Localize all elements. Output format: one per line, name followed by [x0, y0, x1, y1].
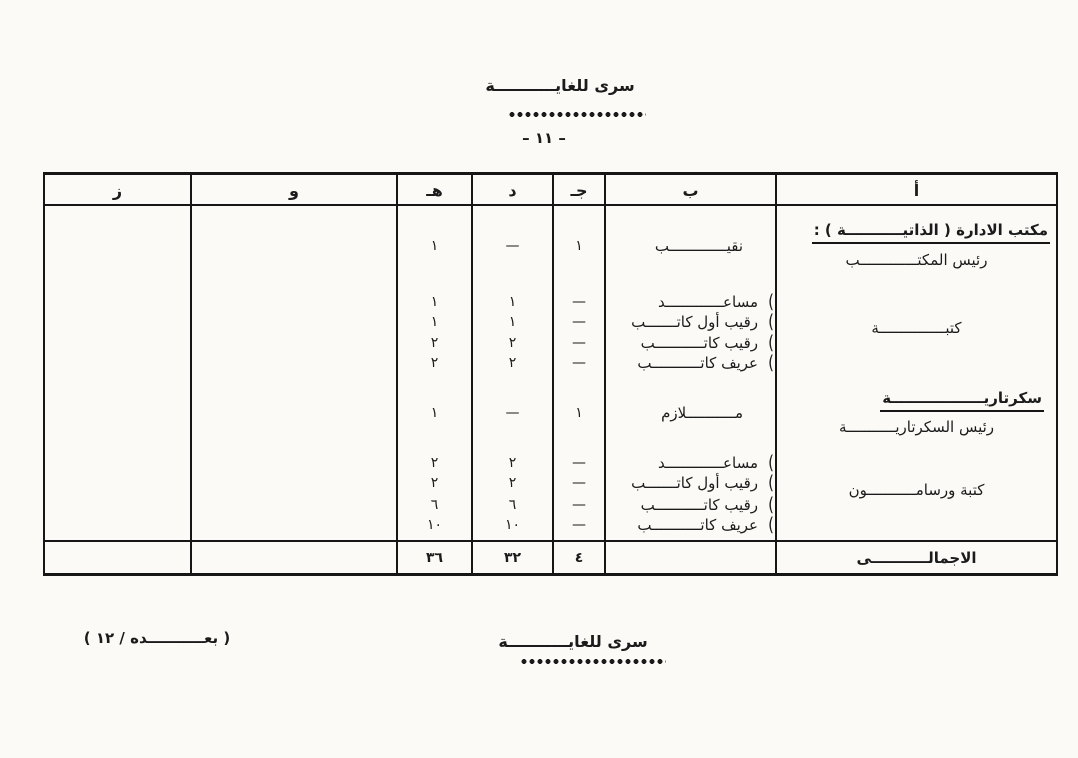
rank-label: رقيب كاتـــــــــــب: [641, 334, 758, 352]
rank-label: مساعـــــــــــــد: [658, 293, 758, 311]
rank-cell: (مساعـــــــــــــد: [606, 293, 775, 311]
empty-column-waw: [190, 206, 396, 540]
value-cell: ٢: [473, 454, 552, 472]
value-cell: ٢: [473, 474, 552, 492]
rank-label: رقيب أول كاتـــــــب: [631, 313, 758, 331]
value-cell: ١: [554, 404, 604, 422]
ranks-column: نقيـــــــــــــب(مساعـــــــــــــد(رقي…: [604, 206, 775, 540]
value-cell: —: [554, 354, 604, 372]
classification-stamp-bottom: سرى للغايـــــــــــة: [478, 632, 668, 651]
rank-label: مـــــــــــلازم: [661, 404, 743, 422]
value-cell: ١: [398, 237, 471, 255]
rank-label: عريف كاتـــــــــــب: [637, 354, 758, 372]
section1-subheading: رئيس المكتـــــــــــــب: [777, 250, 1056, 270]
zigzag-divider-top: [508, 111, 646, 118]
column-header-zay: ز: [45, 175, 190, 204]
value-cell: ١: [554, 237, 604, 255]
rank-cell: نقيـــــــــــــب: [606, 237, 775, 255]
total-empty-ba: [604, 542, 775, 573]
value-cell: —: [554, 454, 604, 472]
table-header-row: أ ب جـ د هـ و ز: [45, 175, 1056, 206]
empty-column-zay: [45, 206, 190, 540]
table-body: مكتب الادارة ( الذاتيـــــــــــة ) : رئ…: [45, 206, 1056, 542]
value-cell: ١: [473, 293, 552, 311]
rank-cell: (عريف كاتـــــــــــب: [606, 516, 775, 534]
rank-cell: (رقيب أول كاتـــــــب: [606, 474, 775, 492]
value-cell: ٢: [398, 474, 471, 492]
rank-label: رقيب أول كاتـــــــب: [631, 474, 758, 492]
section1-group-label: كتبـــــــــــــــة: [777, 318, 1056, 338]
value-cell: ١٠: [473, 516, 552, 534]
zigzag-divider-bottom: [520, 658, 666, 665]
column-header-dal: د: [471, 175, 552, 204]
value-cell: ٢: [398, 454, 471, 472]
rank-cell: (رقيب كاتـــــــــــب: [606, 496, 775, 514]
rank-cell: (عريف كاتـــــــــــب: [606, 354, 775, 372]
total-row: الاجمالـــــــــــى ٤ ٣٢ ٣٦: [45, 542, 1056, 573]
group-brace: (: [768, 310, 774, 333]
value-cell: ٢: [473, 354, 552, 372]
value-cell: ١٠: [398, 516, 471, 534]
rank-cell: (رقيب كاتـــــــــــب: [606, 334, 775, 352]
value-cell: —: [554, 516, 604, 534]
total-empty-zay: [45, 542, 190, 573]
value-cell: —: [554, 496, 604, 514]
column-header-alif: أ: [775, 175, 1056, 204]
section2-group-label: كتبة ورسامـــــــــــون: [777, 480, 1056, 500]
value-cell: ١: [473, 313, 552, 331]
value-cell: —: [473, 404, 552, 422]
section2-subheading: رئيس السكرتاريـــــــــــة: [777, 417, 1056, 437]
section2-heading: سكرتاريــــــــــــــــــة: [880, 388, 1044, 412]
column-header-waw: و: [190, 175, 396, 204]
group-brace: (: [768, 351, 774, 374]
page-number: – ١١ –: [496, 129, 592, 147]
section1-heading: مكتب الادارة ( الذاتيـــــــــــة ) :: [812, 220, 1050, 244]
rank-label: عريف كاتـــــــــــب: [637, 516, 758, 534]
rank-label: مساعـــــــــــــد: [658, 454, 758, 472]
value-cell: ١: [398, 404, 471, 422]
value-cell: ٦: [398, 496, 471, 514]
column-header-ha: هـ: [396, 175, 471, 204]
rank-label: رقيب كاتـــــــــــب: [641, 496, 758, 514]
rank-cell: مـــــــــــلازم: [606, 404, 775, 422]
value-cell: ٢: [473, 334, 552, 352]
total-value-jim: ٤: [552, 542, 604, 573]
classification-stamp-top: سرى للغايـــــــــــة: [468, 76, 652, 95]
value-cell: —: [473, 237, 552, 255]
group-brace: (: [768, 471, 774, 494]
total-label: الاجمالـــــــــــى: [775, 542, 1056, 573]
column-header-jim: جـ: [552, 175, 604, 204]
value-cell: —: [554, 293, 604, 311]
column-header-ba: ب: [604, 175, 775, 204]
values-column-jim: ١————١————: [552, 206, 604, 540]
value-cell: —: [554, 474, 604, 492]
rank-cell: (مساعـــــــــــــد: [606, 454, 775, 472]
total-empty-waw: [190, 542, 396, 573]
value-cell: —: [554, 313, 604, 331]
total-value-dal: ٣٢: [471, 542, 552, 573]
categories-column: مكتب الادارة ( الذاتيـــــــــــة ) : رئ…: [775, 206, 1056, 540]
value-cell: ١: [398, 313, 471, 331]
value-cell: ٦: [473, 496, 552, 514]
continuation-note: ( بعـــــــــــده / ١٢ ): [52, 629, 262, 647]
rank-cell: (رقيب أول كاتـــــــب: [606, 313, 775, 331]
staffing-table: أ ب جـ د هـ و ز مكتب الادارة ( الذاتيـــ…: [43, 172, 1058, 576]
values-column-dal: —١١٢٢—٢٢٦١٠: [471, 206, 552, 540]
group-brace: (: [768, 513, 774, 536]
value-cell: ٢: [398, 334, 471, 352]
rank-label: نقيـــــــــــــب: [655, 237, 743, 255]
value-cell: —: [554, 334, 604, 352]
values-column-ha: ١١١٢٢١٢٢٦١٠: [396, 206, 471, 540]
value-cell: ١: [398, 293, 471, 311]
value-cell: ٢: [398, 354, 471, 372]
total-value-ha: ٣٦: [396, 542, 471, 573]
